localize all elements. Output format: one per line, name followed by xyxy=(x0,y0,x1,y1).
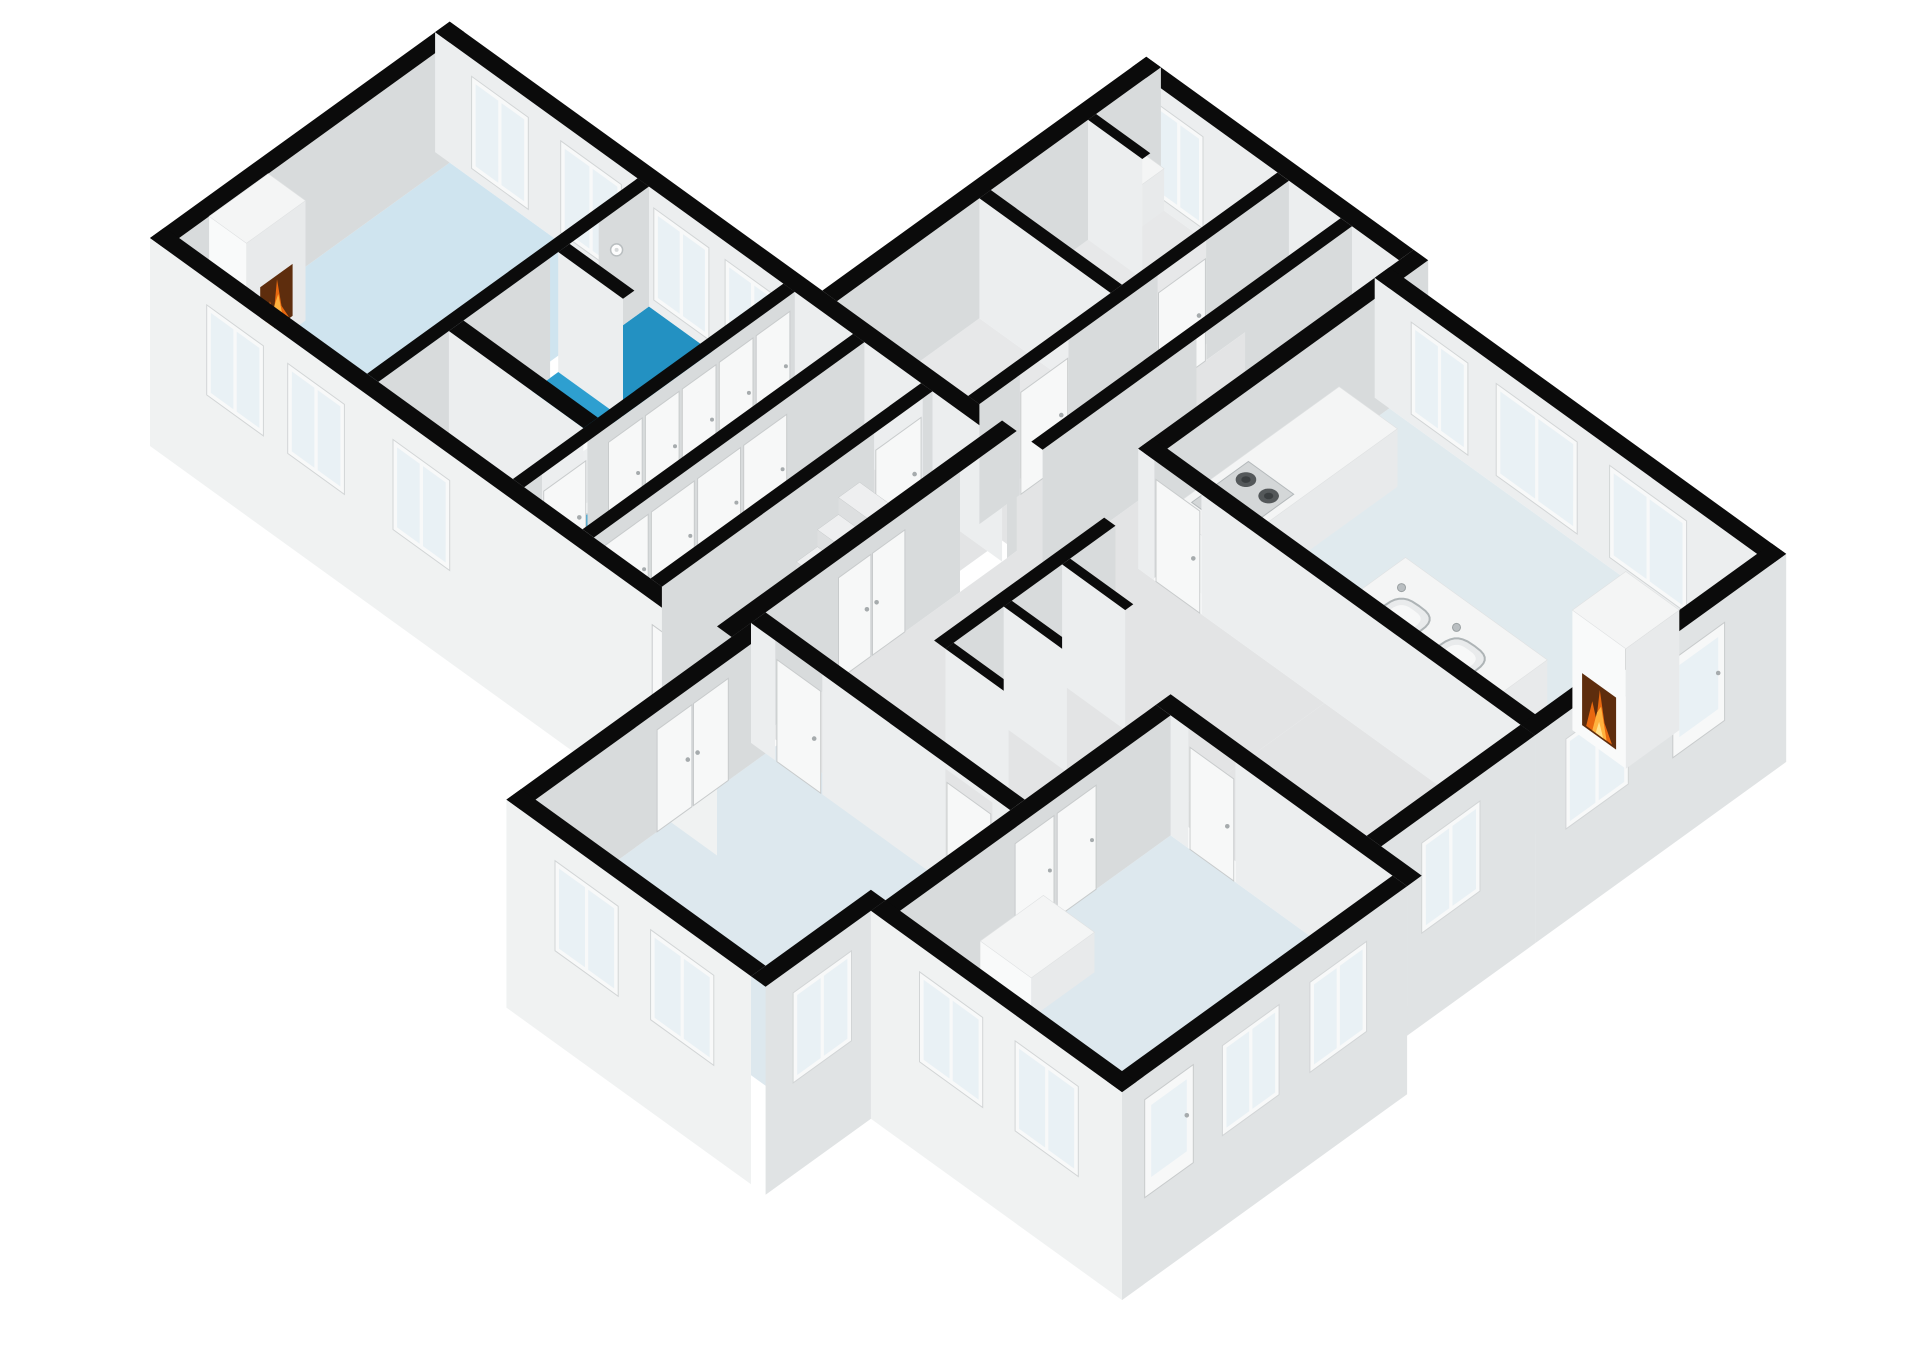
floor-plan-canvas xyxy=(0,0,1920,1358)
kitchen-fireplace-chimney xyxy=(1572,572,1679,769)
floor-plan-3d-svg xyxy=(0,0,1920,1358)
